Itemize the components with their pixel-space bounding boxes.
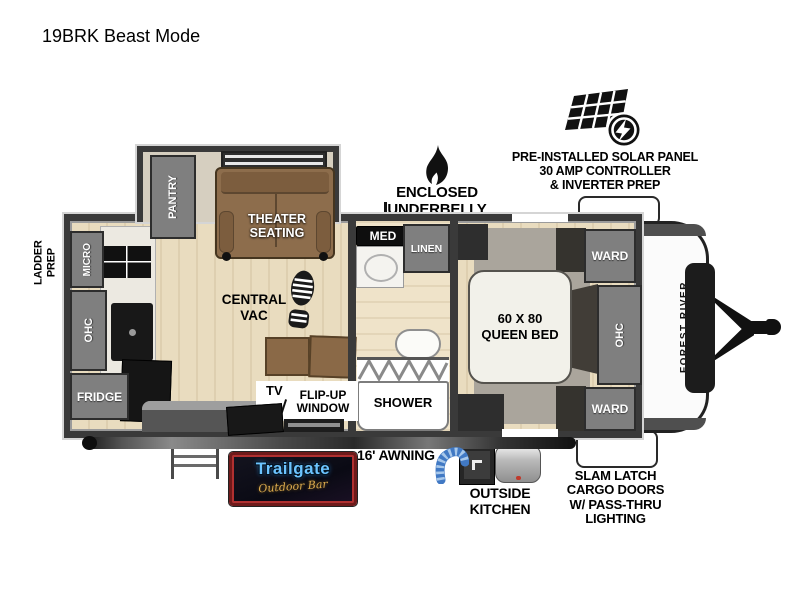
faucet-dot — [129, 329, 136, 336]
ladder-prep-note: LADDER PREP — [32, 226, 57, 300]
propane-cover — [685, 263, 715, 393]
outside-kitchen-line1: OUTSIDE — [448, 486, 552, 502]
shower-door — [357, 357, 449, 382]
central-vac-line1: CENTRAL — [218, 292, 290, 308]
fridge-label: FRIDGE — [77, 390, 122, 404]
queen-bed: 60 X 80 QUEEN BED — [468, 270, 572, 384]
flip-window-line1: FLIP-UP — [290, 389, 356, 402]
slam-line4: LIGHTING — [553, 512, 678, 526]
linen-label: LINEN — [411, 243, 443, 255]
bed-size-label: 60 X 80 — [498, 311, 543, 327]
ward-bottom-cabinet: WARD — [584, 387, 636, 431]
awning-rail — [83, 437, 576, 449]
outside-kitchen-label: OUTSIDE KITCHEN — [448, 486, 552, 517]
solar-note-line3: & INVERTER PREP — [505, 178, 705, 192]
toilet — [395, 329, 441, 359]
kitchen-sink — [111, 303, 153, 361]
sofa-foot-left — [222, 252, 231, 261]
bedroom-ohc-label: OHC — [614, 323, 626, 347]
cooktop — [103, 246, 151, 278]
trailgate-logo: Trailgate Outdoor Bar — [229, 452, 357, 506]
flame-icon — [423, 144, 451, 186]
window-slats — [225, 155, 323, 167]
bedroom-block-top-right — [556, 228, 586, 272]
kitchen-ohc-label: OHC — [83, 318, 95, 342]
outside-kitchen-hose-icon — [435, 446, 469, 484]
bedroom-nightstand-top — [458, 224, 488, 260]
page-title: 19BRK Beast Mode — [42, 26, 200, 47]
solar-note: PRE-INSTALLED SOLAR PANEL 30 AMP CONTROL… — [505, 150, 705, 192]
outside-kitchen-griddle — [495, 445, 541, 483]
bedroom-bench-bottom — [458, 394, 504, 431]
slam-line1: SLAM LATCH — [553, 469, 678, 483]
ward-top-cabinet: WARD — [584, 229, 636, 283]
solar-note-line1: PRE-INSTALLED SOLAR PANEL — [505, 150, 705, 164]
theater-label-line2: SEATING — [232, 226, 322, 240]
bedroom-window-top — [512, 214, 568, 222]
front-cap-top-band — [636, 224, 706, 236]
slam-line3: W/ PASS-THRU — [553, 498, 678, 512]
flip-up-window-label: FLIP-UP WINDOW — [290, 389, 356, 416]
step-tread-2 — [174, 464, 216, 467]
entry-steps — [171, 449, 219, 479]
fridge-cabinet: FRIDGE — [70, 373, 129, 420]
ward-bottom-label: WARD — [592, 402, 629, 416]
flip-window-glass — [288, 423, 340, 427]
hitch-a-frame — [710, 298, 754, 360]
med-cabinet: MED — [356, 226, 410, 246]
central-vac-line2: VAC — [218, 308, 290, 324]
sofa-foot-right — [319, 252, 328, 261]
griddle-knob — [516, 476, 521, 480]
outside-faucet-icon-stem — [472, 460, 475, 470]
tv-label: TV — [266, 383, 283, 398]
bed-type-label: QUEEN BED — [481, 327, 558, 343]
theater-label-line1: THEATER — [232, 212, 322, 226]
hitch-coupler — [766, 319, 781, 335]
bedroom-ohc-cabinet: OHC — [597, 285, 642, 385]
theater-seating-label: THEATER SEATING — [232, 212, 322, 241]
linen-cabinet: LINEN — [403, 224, 450, 273]
solar-panel-icon — [560, 86, 650, 150]
flip-up-window-slot — [284, 419, 344, 432]
ward-top-label: WARD — [592, 249, 629, 263]
sofa-back-cushion — [221, 172, 329, 194]
floorplan-page: 19BRK Beast Mode PRE-INSTALLED SOLAR PAN… — [0, 0, 800, 600]
ladder-prep-line1: LADDER — [32, 226, 45, 300]
awning-rail-end-cap — [82, 436, 97, 450]
kitchen-ohc-cabinet: OHC — [70, 290, 107, 371]
micro-label: MICRO — [82, 243, 93, 276]
outside-kitchen-line2: KITCHEN — [448, 502, 552, 518]
med-label: MED — [370, 229, 397, 243]
step-tread-1 — [174, 455, 216, 458]
central-vac-label: CENTRAL VAC — [218, 292, 290, 323]
bath-wall-right — [450, 221, 458, 431]
bedroom-block-bottom-right — [556, 386, 586, 431]
solar-note-line2: 30 AMP CONTROLLER — [505, 164, 705, 178]
ladder-prep-line2: PREP — [45, 226, 58, 300]
front-cap-bottom-band — [636, 418, 706, 430]
bath-sink-basin — [364, 254, 398, 282]
shower-stall: SHOWER — [357, 381, 449, 431]
shower-label: SHOWER — [359, 395, 447, 410]
pantry-label: PANTRY — [167, 175, 179, 219]
flip-window-line2: WINDOW — [290, 402, 356, 415]
bath-sink-counter — [356, 246, 404, 288]
micro-cabinet: MICRO — [70, 231, 104, 288]
slam-line2: CARGO DOORS — [553, 483, 678, 497]
pantry-cabinet: PANTRY — [150, 155, 196, 239]
awning-label: 16' AWNING — [357, 448, 435, 464]
slam-latch-note: SLAM LATCH CARGO DOORS W/ PASS-THRU LIGH… — [553, 469, 678, 526]
ottoman-left — [265, 337, 310, 376]
tv-unit — [226, 403, 284, 436]
